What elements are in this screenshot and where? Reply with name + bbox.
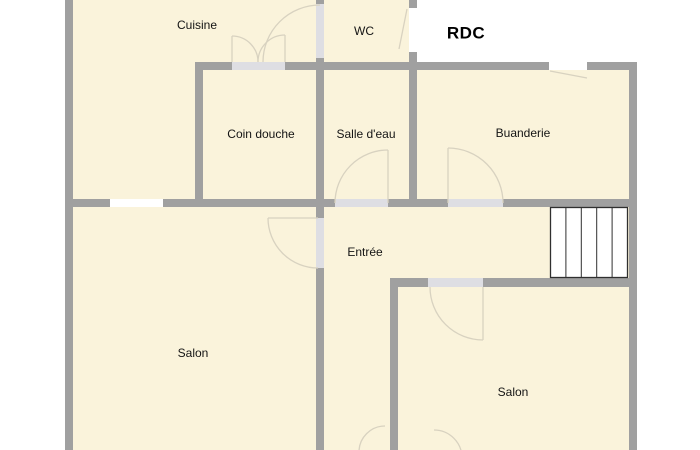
opening-salle-eau xyxy=(335,199,388,207)
wall-salle-eau-right xyxy=(409,52,417,207)
room-label-salon-right: Salon xyxy=(498,386,529,398)
wall-h3-a xyxy=(390,278,428,287)
wall-coin-douche-right xyxy=(316,58,324,207)
room-label-coin-douche: Coin douche xyxy=(227,128,294,140)
door-buanderie-exterior xyxy=(549,62,587,70)
wall-wc-right-stub xyxy=(409,0,417,8)
wall-salon-right-left xyxy=(390,278,398,450)
room-label-buanderie: Buanderie xyxy=(496,127,551,139)
wall-h1-b xyxy=(285,62,549,70)
floorplan: Cuisine WC Coin douche Salle d'eau Buand… xyxy=(0,0,700,450)
opening-cuisine-coindouche xyxy=(232,62,285,70)
wall-h2-c xyxy=(388,199,448,207)
opening-salon-left xyxy=(316,218,324,268)
wall-salon-left-stub xyxy=(316,207,324,218)
wall-h3-b xyxy=(483,278,637,287)
wall-h1-c xyxy=(587,62,637,70)
wall-exterior-left xyxy=(65,0,73,450)
room-label-cuisine: Cuisine xyxy=(177,19,217,31)
door-wc-exterior xyxy=(409,8,417,52)
wall-salon-left-lower xyxy=(316,268,324,450)
wall-coin-douche-left xyxy=(195,62,203,207)
opening-cuisine-wc xyxy=(316,4,324,58)
opening-buanderie xyxy=(448,199,503,207)
wall-exterior-right xyxy=(629,62,637,450)
opening-salon-right xyxy=(428,278,483,287)
stairs-outline xyxy=(551,208,628,278)
wall-h1-a xyxy=(195,62,232,70)
room-label-entree: Entrée xyxy=(347,246,382,258)
floorplan-canvas xyxy=(0,0,700,450)
wall-h2-d xyxy=(503,199,637,207)
wall-cuisine-wc-stub xyxy=(316,0,324,4)
wall-h2-a xyxy=(65,199,110,207)
room-label-salle-eau: Salle d'eau xyxy=(336,128,395,140)
window-salon-left-wall xyxy=(110,199,163,207)
room-label-salon-left: Salon xyxy=(178,347,209,359)
wall-h2-b xyxy=(163,199,335,207)
room-label-wc: WC xyxy=(354,25,374,37)
floor-title: RDC xyxy=(447,25,485,42)
stairs xyxy=(551,208,628,278)
